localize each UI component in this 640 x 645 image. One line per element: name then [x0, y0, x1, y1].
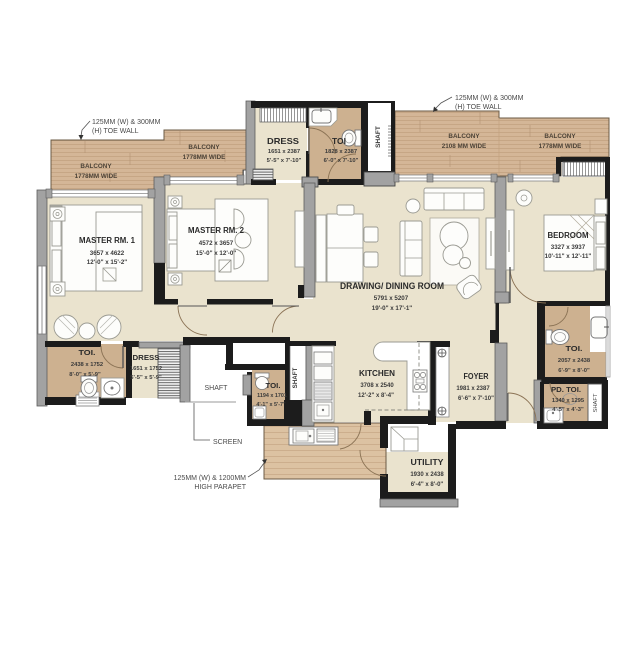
- svg-text:SCREEN: SCREEN: [213, 439, 242, 446]
- svg-text:MASTER RM. 2: MASTER RM. 2: [188, 225, 244, 235]
- svg-text:PD. TOI.: PD. TOI.: [551, 385, 581, 394]
- svg-text:1981 x 2387: 1981 x 2387: [456, 386, 490, 392]
- svg-text:FOYER: FOYER: [464, 371, 490, 381]
- svg-text:5'-5" x 7'-10": 5'-5" x 7'-10": [267, 158, 302, 164]
- svg-text:8'-0" x 5'-9": 8'-0" x 5'-9": [69, 372, 101, 378]
- svg-text:1340 x 1295: 1340 x 1295: [552, 398, 585, 404]
- svg-text:3708 x 2540: 3708 x 2540: [360, 383, 394, 389]
- svg-text:1778MM WIDE: 1778MM WIDE: [539, 143, 582, 150]
- svg-text:SHAFT: SHAFT: [205, 385, 229, 392]
- svg-text:BALCONY: BALCONY: [188, 144, 220, 151]
- svg-text:12'-2" x 8'-4": 12'-2" x 8'-4": [358, 393, 394, 399]
- svg-text:KITCHEN: KITCHEN: [359, 368, 395, 378]
- svg-text:2057 x 2438: 2057 x 2438: [558, 358, 591, 364]
- svg-text:1778MM WIDE: 1778MM WIDE: [183, 154, 226, 161]
- svg-text:6'-9" x 8'-0": 6'-9" x 8'-0": [558, 368, 590, 374]
- svg-text:UTILITY: UTILITY: [411, 457, 444, 467]
- svg-text:4572 x 3657: 4572 x 3657: [199, 240, 234, 247]
- svg-text:MASTER RM. 1: MASTER RM. 1: [79, 235, 135, 245]
- svg-text:3657 x 4622: 3657 x 4622: [90, 250, 125, 257]
- svg-text:2438 x 1752: 2438 x 1752: [71, 362, 103, 368]
- svg-text:4'-1" x 5'-7": 4'-1" x 5'-7": [256, 402, 286, 408]
- svg-text:DRESS: DRESS: [133, 353, 160, 362]
- svg-text:HIGH PARAPET: HIGH PARAPET: [194, 484, 246, 491]
- svg-text:12'-0" x 15'-2": 12'-0" x 15'-2": [87, 259, 128, 266]
- svg-text:SHAFT: SHAFT: [375, 126, 382, 148]
- svg-text:BALCONY: BALCONY: [544, 133, 576, 140]
- svg-text:SHAFT: SHAFT: [593, 393, 599, 412]
- svg-text:15'-0" x 12'-0": 15'-0" x 12'-0": [196, 250, 237, 257]
- svg-text:125MM (W) & 1200MM: 125MM (W) & 1200MM: [174, 475, 247, 482]
- svg-text:DRAWING/ DINING ROOM: DRAWING/ DINING ROOM: [340, 281, 444, 291]
- svg-text:1651 x 2387: 1651 x 2387: [268, 149, 300, 155]
- svg-text:1778MM WIDE: 1778MM WIDE: [75, 173, 118, 180]
- svg-text:SHAFT: SHAFT: [292, 367, 299, 388]
- svg-text:DRESS: DRESS: [267, 137, 300, 146]
- svg-text:5791 x 5207: 5791 x 5207: [374, 295, 409, 302]
- svg-text:1930 x 2438: 1930 x 2438: [410, 472, 444, 478]
- svg-text:6'-6" x 7'-10": 6'-6" x 7'-10": [458, 396, 494, 402]
- svg-text:2108 MM WIDE: 2108 MM WIDE: [442, 143, 486, 150]
- svg-text:BALCONY: BALCONY: [80, 163, 112, 170]
- svg-text:10'-11" x 12'-11": 10'-11" x 12'-11": [545, 253, 592, 260]
- svg-text:1828 x 2387: 1828 x 2387: [325, 149, 357, 155]
- svg-text:6'-4" x 8'-0": 6'-4" x 8'-0": [411, 482, 444, 488]
- svg-text:5'-5" x 5'-9": 5'-5" x 5'-9": [130, 375, 162, 381]
- svg-text:6'-0" x 7'-10": 6'-0" x 7'-10": [324, 158, 359, 164]
- svg-text:TOI.: TOI.: [266, 381, 281, 390]
- svg-text:BALCONY: BALCONY: [448, 133, 480, 140]
- svg-text:1651 x 1752: 1651 x 1752: [130, 366, 162, 372]
- svg-text:(H) TOE WALL: (H) TOE WALL: [92, 128, 139, 135]
- svg-text:1194 x 1701: 1194 x 1701: [257, 393, 287, 399]
- svg-text:TOI.: TOI.: [79, 348, 96, 357]
- svg-text:(H) TOE WALL: (H) TOE WALL: [455, 104, 502, 111]
- svg-text:3327 x 3937: 3327 x 3937: [551, 244, 586, 251]
- svg-text:TOI.: TOI.: [566, 344, 583, 353]
- svg-text:125MM (W) & 300MM: 125MM (W) & 300MM: [92, 119, 161, 126]
- svg-text:TOI: TOI: [332, 137, 346, 146]
- svg-text:4'-5" x 4'-3": 4'-5" x 4'-3": [552, 407, 584, 413]
- svg-text:125MM (W) & 300MM: 125MM (W) & 300MM: [455, 95, 524, 102]
- svg-text:BEDROOM: BEDROOM: [548, 230, 589, 240]
- svg-text:19'-0" x 17'-1": 19'-0" x 17'-1": [372, 305, 413, 312]
